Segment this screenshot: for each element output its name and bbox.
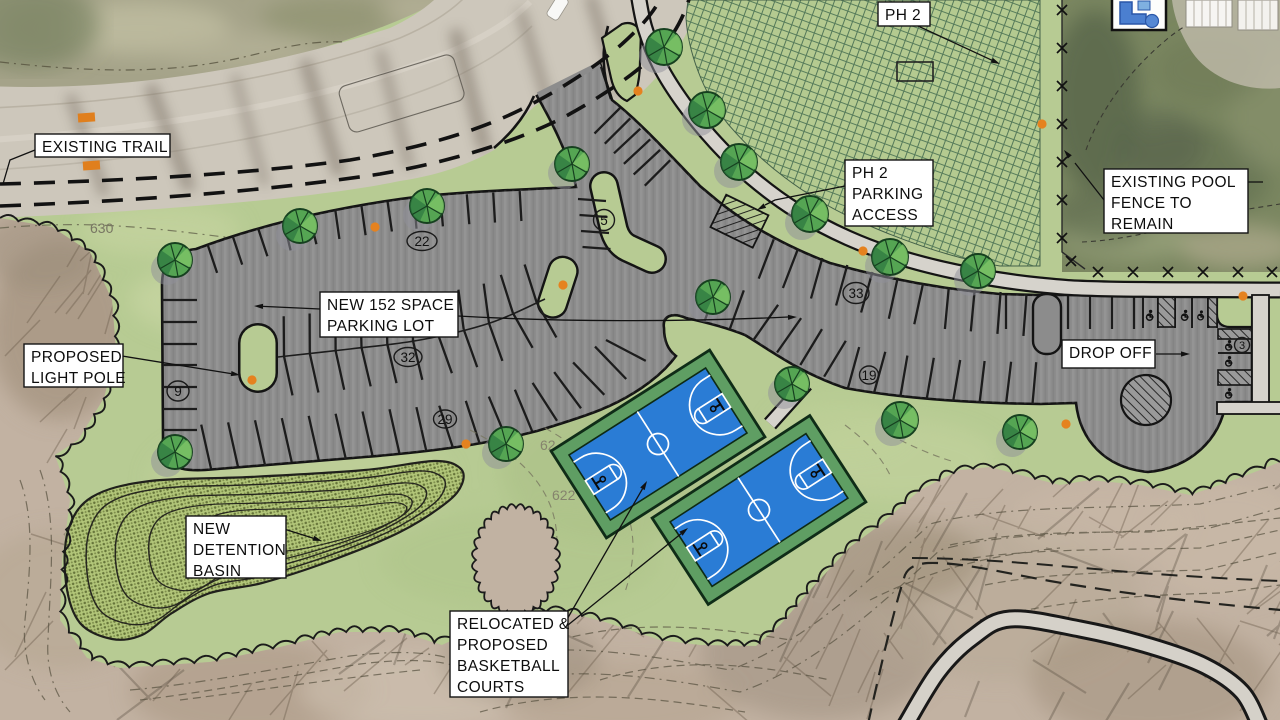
- svg-text:33: 33: [848, 286, 863, 301]
- svg-text:NEW 152 SPACE: NEW 152 SPACE: [327, 297, 454, 314]
- svg-text:DROP OFF: DROP OFF: [1069, 345, 1152, 362]
- svg-text:PROPOSED: PROPOSED: [457, 637, 548, 654]
- svg-text:3: 3: [1239, 340, 1245, 352]
- svg-text:22: 22: [414, 234, 429, 249]
- svg-text:FENCE TO: FENCE TO: [1111, 195, 1192, 212]
- svg-text:PARKING: PARKING: [852, 186, 923, 203]
- svg-text:REMAIN: REMAIN: [1111, 216, 1174, 233]
- svg-text:PROPOSED: PROPOSED: [31, 349, 122, 366]
- svg-text:630: 630: [90, 220, 114, 236]
- svg-text:5: 5: [600, 213, 608, 228]
- svg-text:DETENTION: DETENTION: [193, 542, 286, 559]
- svg-text:COURTS: COURTS: [457, 679, 525, 696]
- svg-text:BASKETBALL: BASKETBALL: [457, 658, 560, 675]
- svg-text:BASIN: BASIN: [193, 563, 242, 580]
- svg-text:LIGHT POLE: LIGHT POLE: [31, 370, 126, 387]
- svg-text:PH 2: PH 2: [885, 7, 921, 24]
- svg-text:622: 622: [552, 487, 576, 503]
- svg-text:EXISTING POOL: EXISTING POOL: [1111, 174, 1236, 191]
- svg-text:EXISTING TRAIL: EXISTING TRAIL: [42, 139, 168, 156]
- svg-text:RELOCATED &: RELOCATED &: [457, 616, 570, 633]
- svg-text:NEW: NEW: [193, 521, 230, 538]
- svg-text:29: 29: [437, 412, 452, 427]
- svg-text:PH 2: PH 2: [852, 165, 888, 182]
- svg-text:32: 32: [400, 350, 415, 365]
- svg-text:9: 9: [174, 384, 182, 399]
- svg-text:19: 19: [861, 368, 876, 383]
- svg-text:PARKING LOT: PARKING LOT: [327, 318, 435, 335]
- svg-text:ACCESS: ACCESS: [852, 207, 918, 224]
